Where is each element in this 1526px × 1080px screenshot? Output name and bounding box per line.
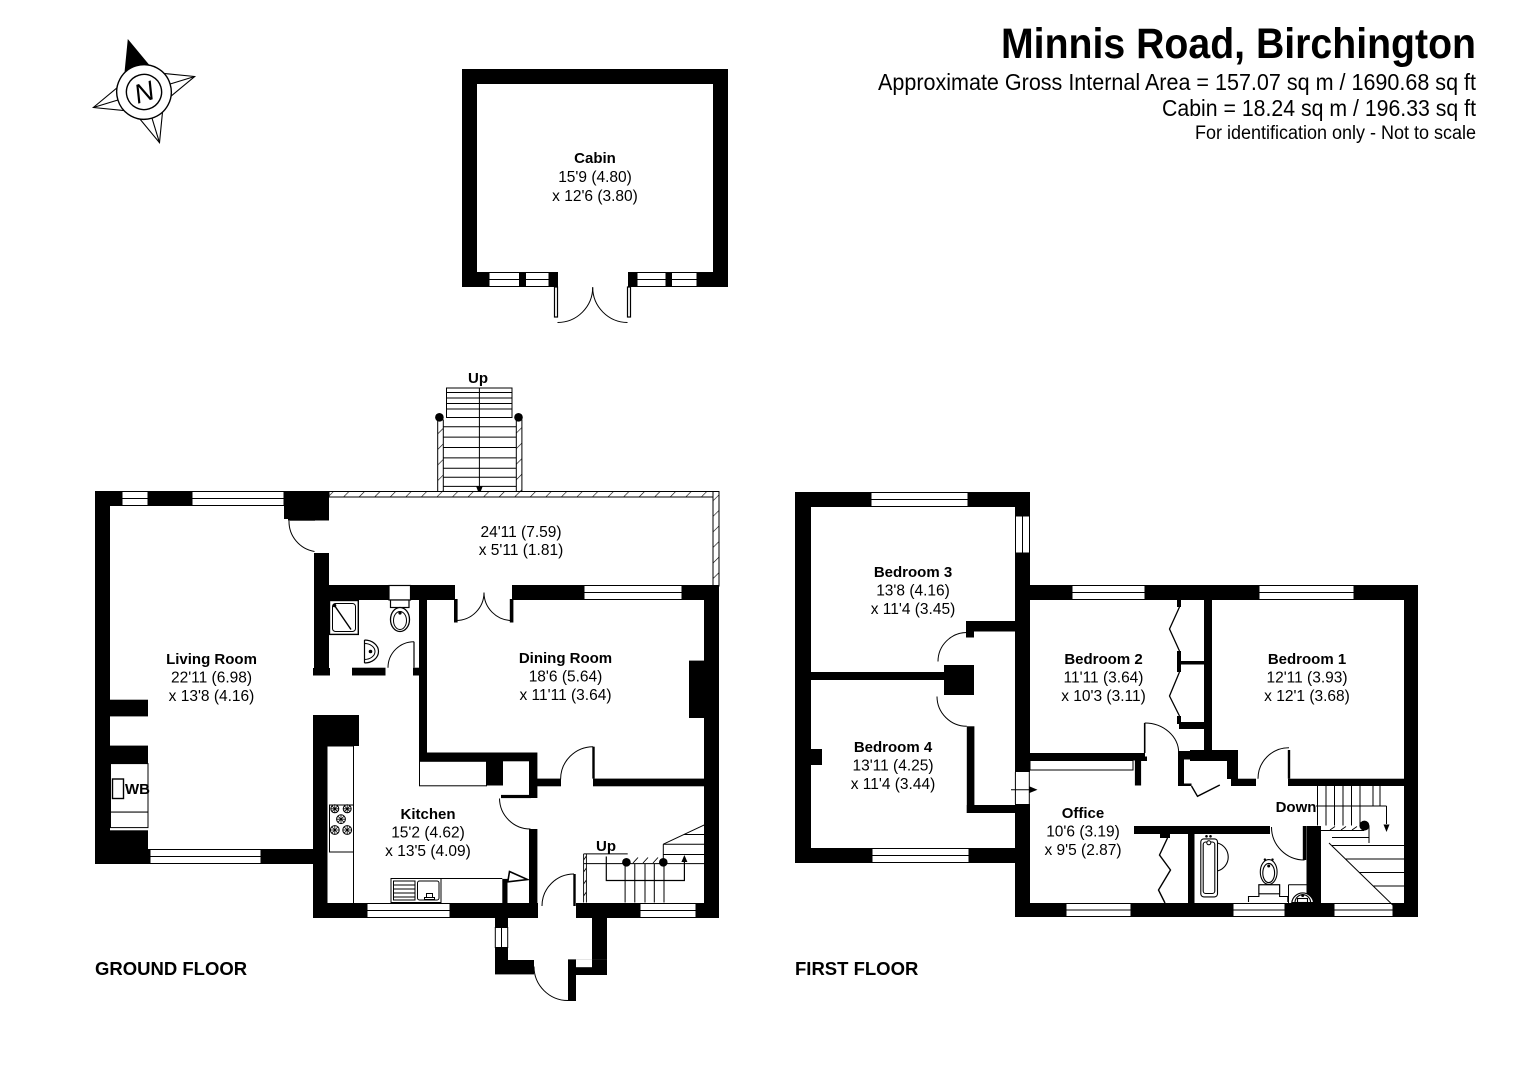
svg-text:Bedroom 2: Bedroom 2 <box>1064 651 1142 668</box>
svg-text:22'11 (6.98): 22'11 (6.98) <box>171 670 252 687</box>
svg-text:Approximate Gross Internal Are: Approximate Gross Internal Area = 157.07… <box>878 69 1477 95</box>
svg-text:Bedroom 3: Bedroom 3 <box>874 564 952 581</box>
svg-text:15'2 (4.62): 15'2 (4.62) <box>391 825 465 842</box>
svg-text:x 10'3 (3.11): x 10'3 (3.11) <box>1061 688 1146 705</box>
svg-text:Minnis Road, Birchington: Minnis Road, Birchington <box>1001 20 1476 68</box>
svg-text:Office: Office <box>1062 805 1105 822</box>
svg-text:18'6 (5.64): 18'6 (5.64) <box>529 669 603 686</box>
svg-text:x 9'5 (2.87): x 9'5 (2.87) <box>1044 842 1121 859</box>
svg-text:11'11 (3.64): 11'11 (3.64) <box>1064 670 1144 687</box>
svg-text:Living Room: Living Room <box>166 651 257 668</box>
svg-text:x 13'5 (4.09): x 13'5 (4.09) <box>385 843 471 860</box>
svg-text:15'9 (4.80): 15'9 (4.80) <box>558 169 632 186</box>
svg-text:Cabin = 18.24 sq m / 196.33 sq: Cabin = 18.24 sq m / 196.33 sq ft <box>1162 95 1477 121</box>
svg-text:Dining Room: Dining Room <box>519 650 612 667</box>
svg-text:24'11 (7.59): 24'11 (7.59) <box>480 524 561 541</box>
svg-text:Cabin: Cabin <box>574 150 616 167</box>
svg-text:FIRST FLOOR: FIRST FLOOR <box>795 958 918 979</box>
svg-text:x 12'1 (3.68): x 12'1 (3.68) <box>1264 688 1350 705</box>
svg-text:x 12'6 (3.80): x 12'6 (3.80) <box>552 188 638 205</box>
svg-text:GROUND FLOOR: GROUND FLOOR <box>95 958 247 979</box>
svg-text:13'11 (4.25): 13'11 (4.25) <box>852 758 933 775</box>
svg-text:x 11'11 (3.64): x 11'11 (3.64) <box>520 687 612 704</box>
svg-text:Down: Down <box>1276 799 1317 816</box>
svg-text:Kitchen: Kitchen <box>400 806 455 823</box>
svg-text:13'8 (4.16): 13'8 (4.16) <box>876 583 950 600</box>
svg-text:x 5'11 (1.81): x 5'11 (1.81) <box>479 542 564 559</box>
svg-text:WB: WB <box>125 781 150 798</box>
svg-text:Bedroom 1: Bedroom 1 <box>1268 651 1346 668</box>
svg-text:12'11 (3.93): 12'11 (3.93) <box>1266 670 1347 687</box>
svg-text:10'6 (3.19): 10'6 (3.19) <box>1046 824 1120 841</box>
svg-text:For identification only - Not: For identification only - Not to scale <box>1195 123 1476 144</box>
svg-text:x 11'4 (3.44): x 11'4 (3.44) <box>851 776 936 793</box>
svg-text:Up: Up <box>468 370 488 387</box>
svg-text:x 11'4 (3.45): x 11'4 (3.45) <box>871 601 956 618</box>
svg-text:Up: Up <box>596 838 616 855</box>
svg-text:Bedroom 4: Bedroom 4 <box>854 739 933 756</box>
svg-text:x 13'8 (4.16): x 13'8 (4.16) <box>169 688 255 705</box>
